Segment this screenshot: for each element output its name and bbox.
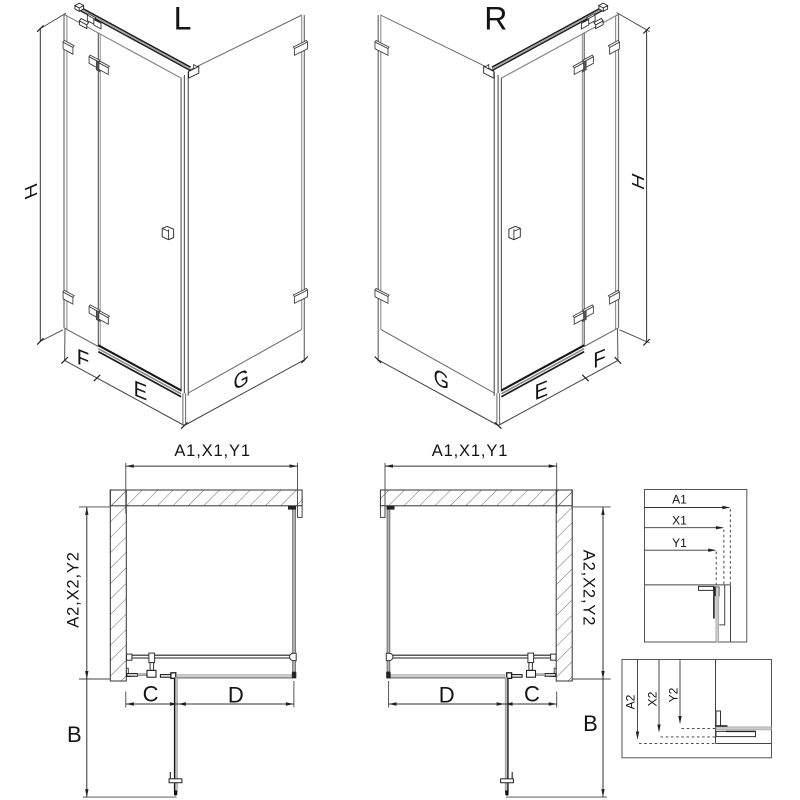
svg-text:B: B	[67, 722, 82, 747]
svg-text:A2,X2,Y2: A2,X2,Y2	[64, 551, 82, 628]
svg-text:A1,X1,Y1: A1,X1,Y1	[174, 442, 251, 460]
svg-text:A2,X2,Y2: A2,X2,Y2	[579, 550, 597, 627]
svg-text:A1: A1	[672, 493, 687, 507]
svg-text:F: F	[593, 344, 606, 374]
svg-text:H: H	[629, 171, 648, 193]
svg-text:R: R	[484, 1, 507, 37]
svg-text:C: C	[143, 682, 159, 707]
svg-text:E: E	[534, 375, 548, 405]
svg-text:Y2: Y2	[667, 687, 681, 702]
svg-text:G: G	[234, 363, 249, 396]
svg-text:B: B	[583, 711, 598, 736]
svg-text:C: C	[524, 682, 540, 707]
svg-text:D: D	[439, 683, 455, 708]
svg-text:G: G	[434, 363, 449, 396]
svg-text:F: F	[77, 344, 90, 374]
svg-text:D: D	[228, 683, 244, 708]
svg-text:X1: X1	[672, 514, 687, 528]
svg-text:X2: X2	[646, 691, 660, 706]
svg-text:A1,X1,Y1: A1,X1,Y1	[432, 442, 509, 460]
svg-text:E: E	[134, 375, 148, 405]
svg-text:H: H	[23, 180, 42, 202]
svg-text:L: L	[174, 1, 192, 37]
svg-text:A2: A2	[624, 694, 638, 709]
svg-text:Y1: Y1	[672, 536, 687, 550]
